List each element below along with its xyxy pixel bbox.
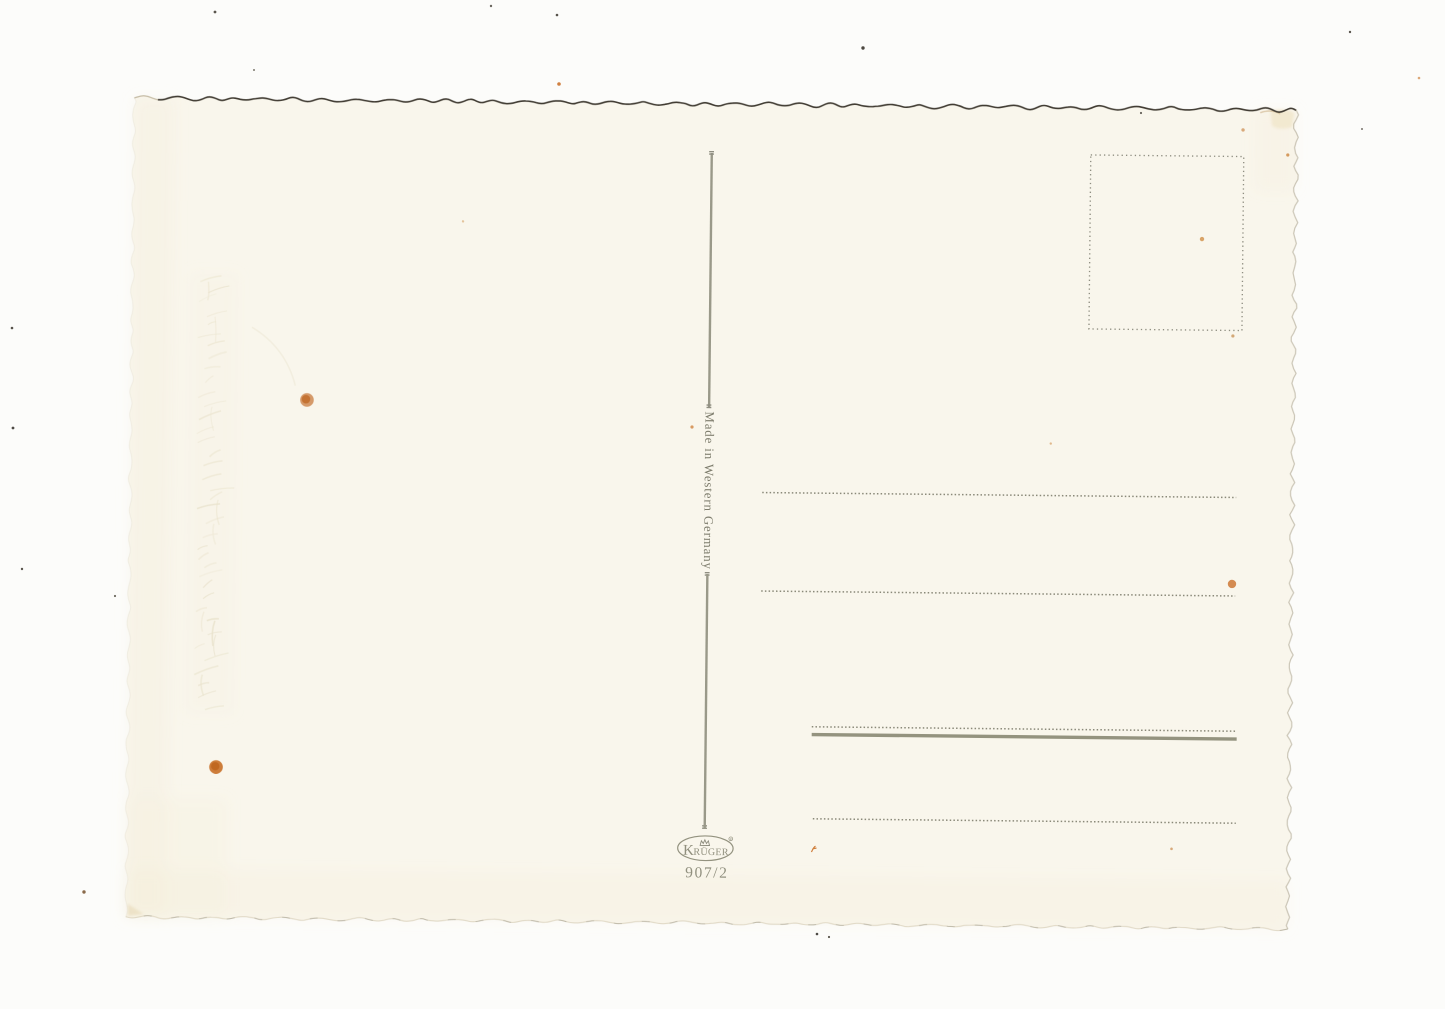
svg-text:907/2: 907/2 [685,864,728,881]
svg-text:Made in Western Germany: Made in Western Germany [701,411,717,570]
